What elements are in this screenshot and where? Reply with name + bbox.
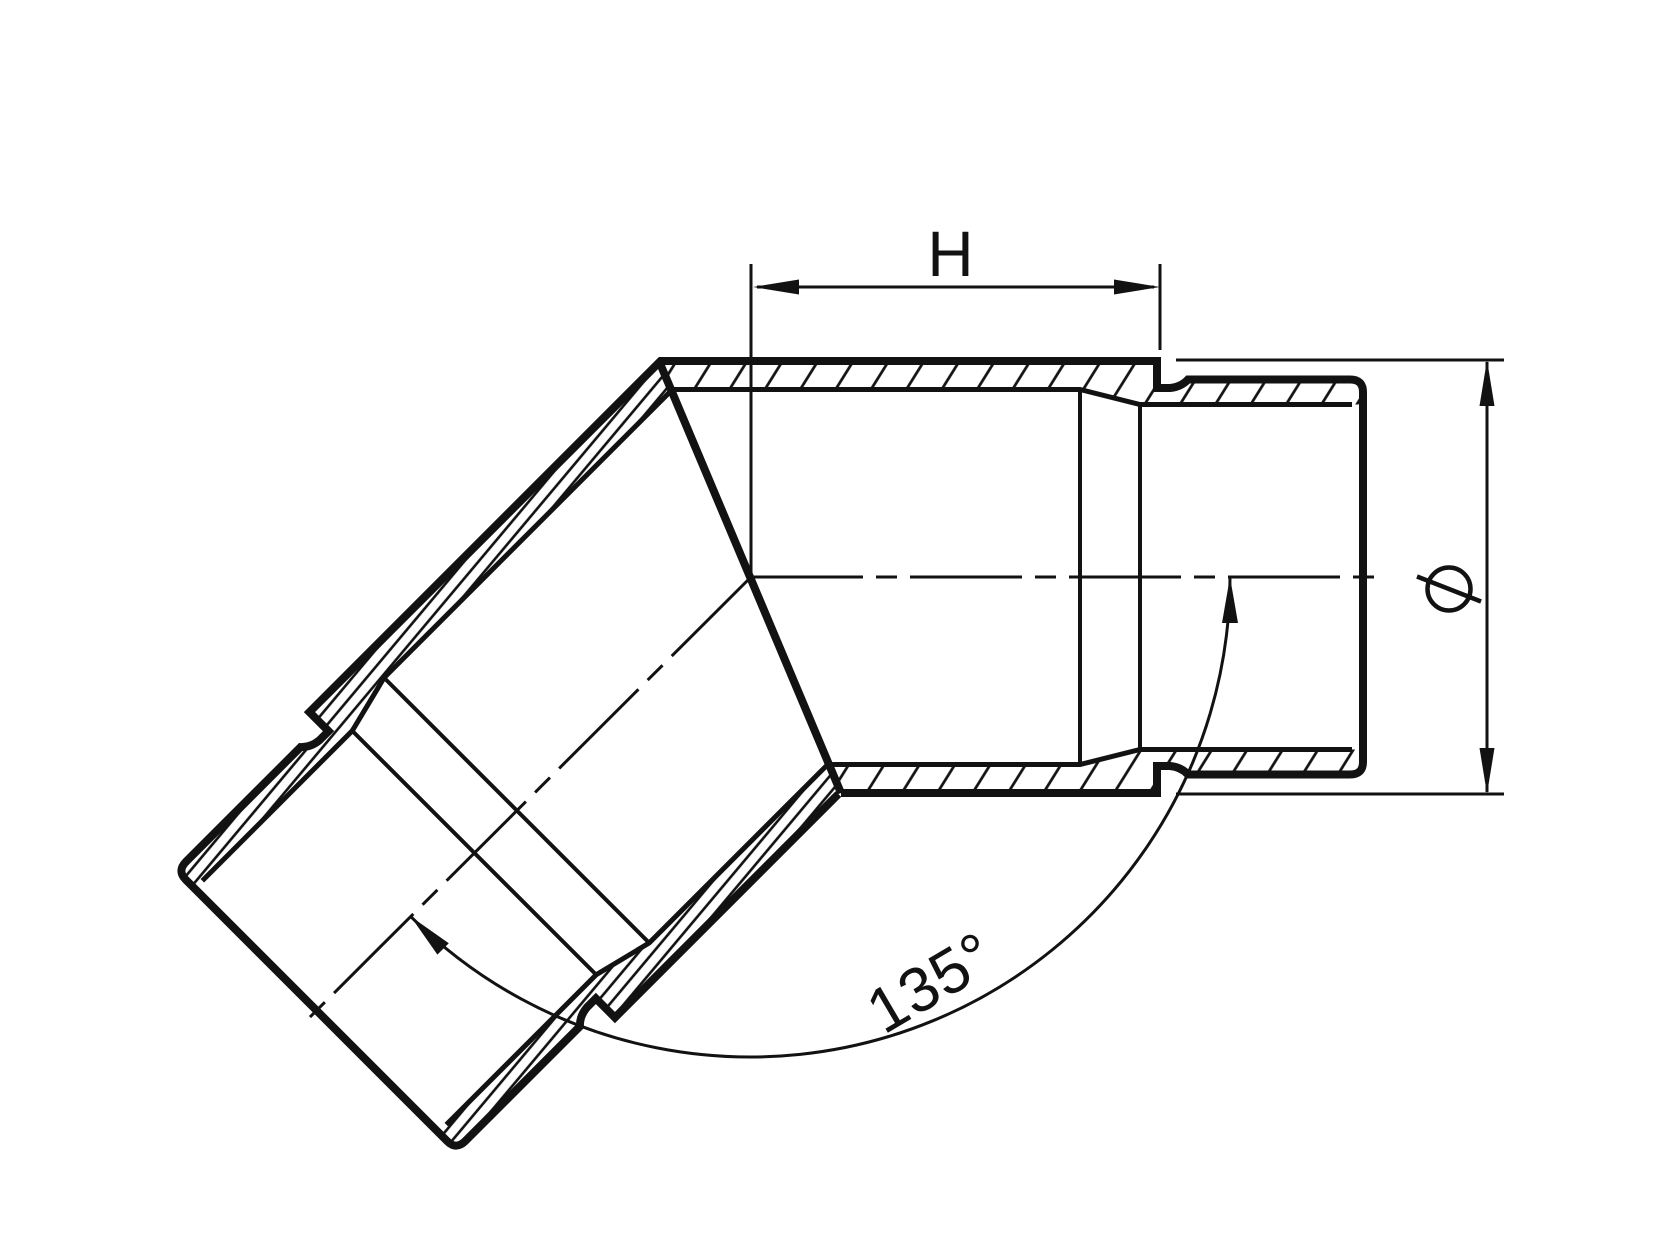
elbow-fitting-technical-drawing: H 135° [0,0,1680,1260]
h-dimension-label: H [927,218,974,290]
drawing-page: H 135° [0,0,1680,1260]
drawing-background [0,0,1680,1260]
